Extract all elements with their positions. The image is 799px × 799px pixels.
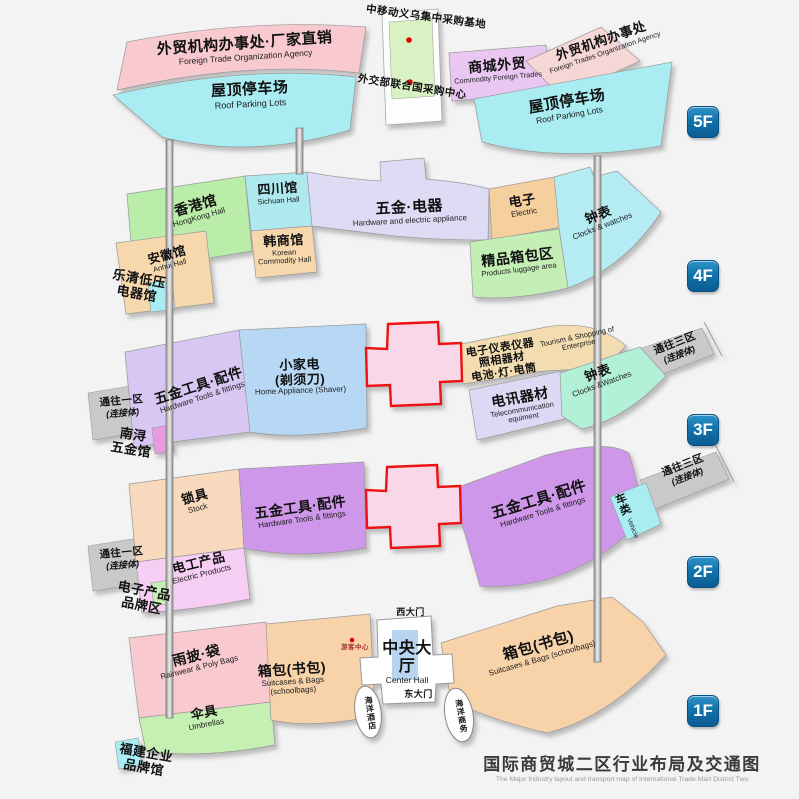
- map-title-en: The Major Industry layout and transport …: [448, 776, 796, 783]
- floor-badge-3f: 3F: [687, 414, 719, 446]
- map-title: 国际商贸城二区行业布局及交通图 The Major Industry layou…: [448, 750, 796, 783]
- west-gate-zh: 西大门: [388, 607, 433, 617]
- visitor-center-zh: 游客中心: [334, 644, 376, 651]
- floor-badge-5f: 5F: [687, 106, 719, 138]
- cross-junction-2f: [366, 465, 461, 548]
- floor-badge-4f: 4F: [687, 260, 719, 292]
- east-gate-zh: 东大门: [396, 689, 441, 699]
- trade-mart-map: 外贸机构办事处·厂家直销 Foreign Trade Organization …: [0, 0, 799, 799]
- pole-5f-stub: [296, 128, 303, 174]
- marker-dot-top: [406, 37, 412, 43]
- floor-badge-2f: 2F: [687, 556, 719, 588]
- visitor-center-label: 游客中心: [334, 644, 376, 651]
- east-gate-label: 东大门: [396, 689, 441, 699]
- map-title-zh: 国际商贸城二区行业布局及交通图: [448, 750, 796, 775]
- vehicle-en: Vehicle: [625, 518, 640, 540]
- visitor-center-dot: [350, 638, 355, 643]
- area-label-korean-hall: 韩商馆 Korean Commodity Hall: [251, 232, 317, 267]
- center-hall-en: Center Hall: [375, 676, 439, 686]
- area-label-home-appliance: 小家电 (剃须刀) Home Appliance (Shaver): [244, 356, 355, 398]
- center-hall-zh: 中央大厅: [375, 640, 439, 676]
- floor-badge-1f: 1F: [687, 695, 719, 727]
- korean-en: Korean Commodity Hall: [252, 247, 317, 267]
- center-hall-label: 中央大厅 Center Hall: [375, 640, 439, 685]
- west-gate-label: 西大门: [388, 607, 433, 617]
- area-label-sichuan-hall: 四川馆 Sichuan Hall: [247, 180, 308, 207]
- hotel-zh: 海洋酒店: [363, 696, 377, 731]
- area-shape-bags-right: [441, 597, 666, 733]
- business-zh: 海洋商务: [453, 699, 468, 734]
